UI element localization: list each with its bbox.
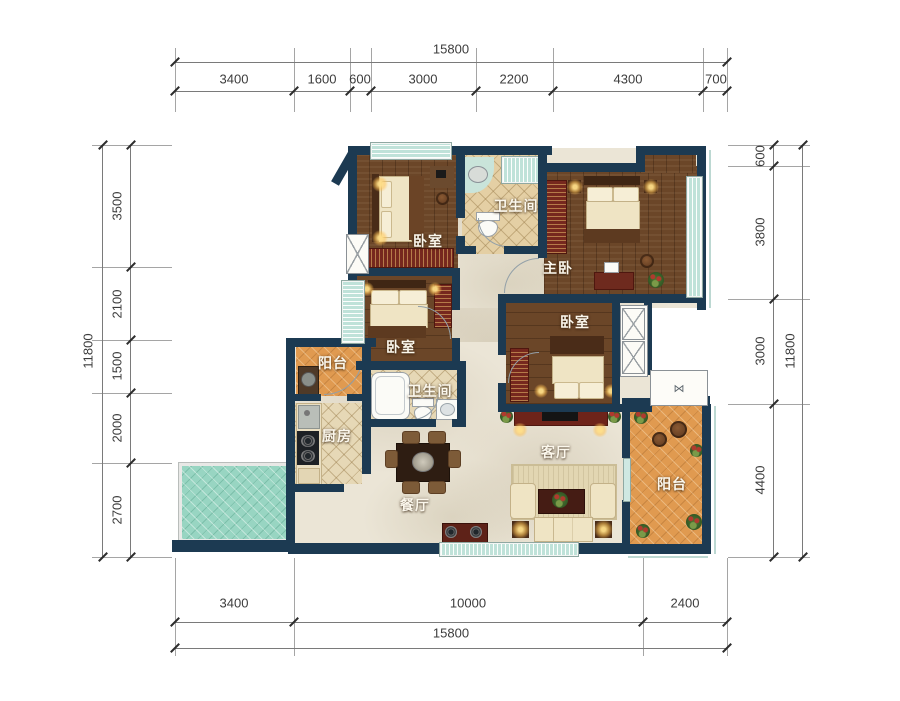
dim-top-seg: 3400 <box>220 72 249 87</box>
armchair <box>590 483 616 519</box>
wall <box>456 146 465 218</box>
dimension-line-right-segments <box>773 145 774 557</box>
pillow <box>579 382 604 399</box>
wall <box>622 500 630 546</box>
window-left <box>342 281 364 343</box>
extension-line <box>553 48 554 112</box>
bedside-lamp-glow <box>372 230 388 246</box>
decor-knob <box>470 526 482 538</box>
dim-left-seg: 1500 <box>110 352 125 381</box>
room-label-bedroom-mid-right: 卧室 <box>560 312 590 332</box>
bed-headboard <box>584 176 640 185</box>
plant <box>636 524 650 538</box>
bedside-lamp-glow <box>643 179 659 195</box>
wall <box>347 394 362 401</box>
bed-mattress <box>552 356 604 384</box>
plant <box>686 514 702 530</box>
wall <box>362 338 371 428</box>
wall <box>576 543 628 554</box>
pillow <box>371 290 399 305</box>
shower-window <box>502 157 540 183</box>
wall <box>460 246 476 254</box>
extension-line <box>294 558 295 656</box>
bedside-lamp-glow <box>428 282 442 296</box>
wall <box>286 484 344 492</box>
table-centerpiece <box>412 452 434 472</box>
floor-lamp-glow <box>512 423 528 437</box>
wall <box>457 361 466 426</box>
window-bottom <box>440 543 578 556</box>
wardrobe <box>546 180 567 254</box>
stool <box>640 254 654 268</box>
stool <box>652 432 667 447</box>
room-label-dining: 餐厅 <box>400 495 430 515</box>
extension-line <box>476 48 477 112</box>
stove-burner <box>301 435 315 447</box>
room-label-balcony-right: 阳台 <box>657 474 687 494</box>
tv <box>542 411 578 421</box>
kitchen-sink <box>298 405 320 429</box>
wall <box>356 361 466 370</box>
wall <box>538 146 547 258</box>
dim-left-seg: 3500 <box>110 192 125 221</box>
wall <box>504 246 544 254</box>
extension-line <box>728 145 810 146</box>
kitchen-cabinet <box>298 468 320 484</box>
wall <box>702 404 711 554</box>
room-label-balcony-left: 阳台 <box>318 353 348 373</box>
dining-chair <box>402 431 420 444</box>
pillow <box>587 187 613 202</box>
bay-window: ⋈ <box>650 370 708 406</box>
wall <box>288 543 440 554</box>
window-master-right <box>687 177 702 297</box>
dim-bottom-total: 15800 <box>433 626 469 641</box>
desk-laptop <box>436 170 446 178</box>
bath-sink <box>468 166 488 183</box>
wall <box>498 404 652 412</box>
plant <box>552 492 568 508</box>
extension-line <box>703 48 704 112</box>
room-label-bedroom-mid-left: 卧室 <box>386 337 416 357</box>
pillow <box>399 290 427 305</box>
extension-line <box>175 558 176 656</box>
dining-chair <box>448 450 461 468</box>
dim-top-seg: 3000 <box>409 72 438 87</box>
extension-line <box>728 166 810 167</box>
armchair <box>510 483 536 519</box>
dim-bottom-seg: 3400 <box>220 596 249 611</box>
bathtub-inner <box>375 376 405 415</box>
plant <box>648 272 664 288</box>
lamp-glow <box>511 520 530 539</box>
plant <box>634 410 648 424</box>
desk-chair <box>436 192 449 205</box>
wardrobe <box>366 248 454 268</box>
room-label-master: 主卧 <box>543 258 573 278</box>
dim-bottom-seg: 10000 <box>450 596 486 611</box>
wall <box>544 163 644 172</box>
dim-bottom-seg: 2400 <box>671 596 700 611</box>
bedside-lamp-glow <box>372 176 388 192</box>
bed-footer <box>584 229 640 243</box>
dining-chair <box>428 481 446 494</box>
dresser-chair <box>604 262 619 273</box>
room-master-floor-notch <box>640 155 696 173</box>
bed-mattress <box>586 201 640 231</box>
railing-line <box>709 150 711 308</box>
floor-plan-page: ⋈ 卧室 卫生间 主卧 卧室 卧室 阳台 卫生间 厨房 餐厅 客厅 阳台 158… <box>0 0 900 701</box>
wall <box>498 294 706 303</box>
closet-box <box>622 308 645 340</box>
pillow <box>613 187 639 202</box>
dim-right-seg: 3000 <box>753 337 768 366</box>
extension-line <box>728 557 810 558</box>
dresser <box>594 272 634 290</box>
dining-chair <box>402 481 420 494</box>
room-label-bathroom-mid: 卫生间 <box>408 381 453 401</box>
sofa <box>534 517 593 542</box>
dim-top-seg: 4300 <box>614 72 643 87</box>
extension-line <box>371 48 372 112</box>
bedside-lamp-glow <box>534 384 548 398</box>
stool <box>670 421 687 438</box>
room-label-living: 客厅 <box>541 442 571 462</box>
wall <box>172 540 294 552</box>
dim-left-seg: 2700 <box>110 496 125 525</box>
dimension-line-top-segments <box>175 91 727 92</box>
glass-door <box>623 458 631 502</box>
wall <box>362 419 436 427</box>
dim-top-seg: 600 <box>349 72 371 87</box>
room-label-kitchen: 厨房 <box>322 426 352 446</box>
dim-top-seg: 1600 <box>308 72 337 87</box>
patio-floor <box>179 463 292 542</box>
dim-left-total: 11800 <box>81 333 96 368</box>
extension-line <box>727 48 728 112</box>
dining-chair <box>428 431 446 444</box>
dimension-line-bottom-total <box>175 648 727 649</box>
pillow <box>554 382 579 399</box>
dimension-line-left-total <box>102 145 103 557</box>
dim-right-seg: 3800 <box>753 218 768 247</box>
railing-line <box>628 556 708 558</box>
wall <box>286 338 295 552</box>
bed-canopy <box>550 336 604 354</box>
bed-headboard <box>368 280 426 288</box>
dimension-line-left-segments <box>130 145 131 557</box>
wall <box>626 544 708 554</box>
closet-box <box>622 341 645 374</box>
bay-window-icon: ⋈ <box>674 382 685 395</box>
wall <box>612 303 620 404</box>
wall <box>622 404 630 458</box>
extension-line <box>294 48 295 112</box>
extension-line <box>728 404 810 405</box>
extension-line <box>175 48 176 112</box>
extension-line <box>727 558 728 656</box>
railing-line <box>714 406 716 554</box>
dim-top-seg: 2200 <box>500 72 529 87</box>
dining-chair <box>385 450 398 468</box>
wall <box>452 276 460 310</box>
bath-sink <box>440 403 455 416</box>
wall <box>452 419 466 427</box>
dim-left-seg: 2100 <box>110 290 125 319</box>
window-top <box>371 143 451 159</box>
wall <box>498 303 506 355</box>
room-label-bathroom-top: 卫生间 <box>494 196 539 216</box>
dim-left-seg: 2000 <box>110 414 125 443</box>
wall <box>362 428 371 474</box>
lamp-glow <box>594 520 613 539</box>
bedside-lamp-glow <box>567 179 583 195</box>
room-label-bedroom-top-left: 卧室 <box>413 231 443 251</box>
dim-right-seg: 4400 <box>753 466 768 495</box>
dimension-line-top-total <box>175 62 727 63</box>
extension-line <box>643 558 644 656</box>
washer-drum <box>301 372 316 387</box>
dim-right-seg: 600 <box>753 145 768 167</box>
stove-burner <box>301 450 315 462</box>
dim-top-total: 15800 <box>433 42 469 57</box>
dim-right-total: 11800 <box>783 333 798 368</box>
decor-knob <box>445 526 457 538</box>
wall <box>295 394 321 401</box>
faucet <box>304 410 310 416</box>
dimension-line-right-total <box>802 145 803 557</box>
duct-shaft <box>346 234 369 274</box>
floor-lamp-glow <box>592 423 608 437</box>
extension-line <box>728 299 810 300</box>
dim-top-seg: 700 <box>705 72 727 87</box>
